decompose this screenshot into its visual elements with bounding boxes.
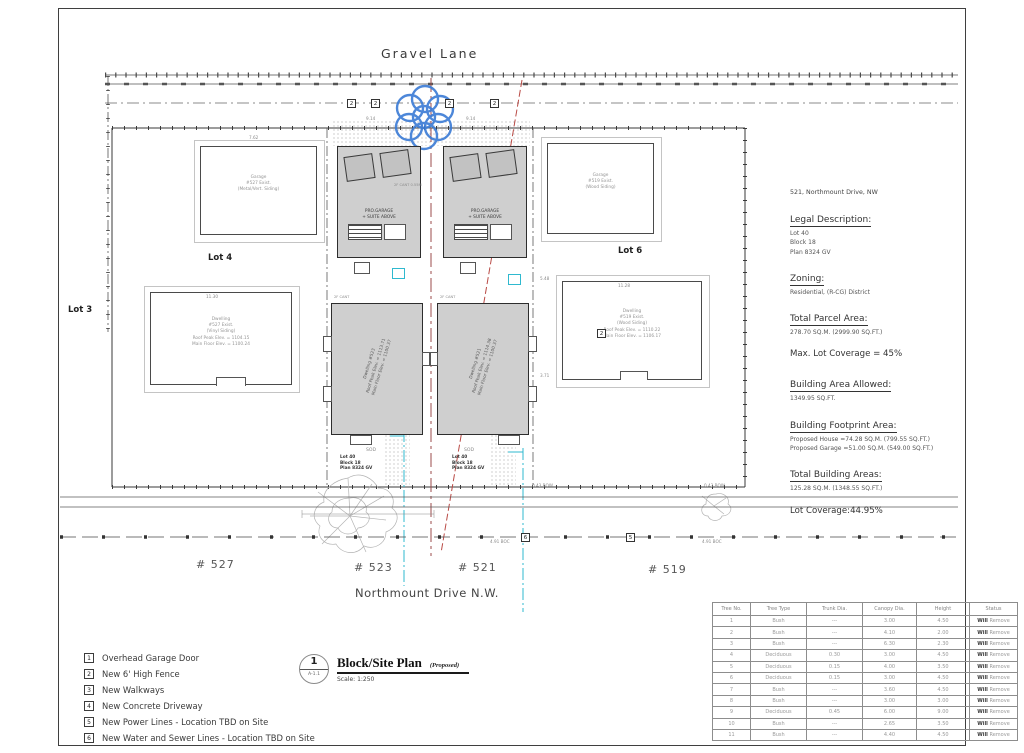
legend-keynote-box: 1	[84, 653, 94, 663]
tree-table-row: 8Bush---3.003.00Will Remove	[713, 695, 1018, 706]
tree-table-row: 3Bush---6.302.30Will Remove	[713, 638, 1018, 649]
tree-table-cell: 11	[713, 729, 751, 740]
tree-table-cell: 3.60	[863, 684, 917, 695]
detail-bubble: 1 A-1.1	[299, 654, 329, 684]
garage-521-stairs	[454, 224, 488, 240]
tree-table-cell: 6	[713, 672, 751, 683]
tree-table-cell: 2.65	[863, 718, 917, 729]
tree-table-cell: 8	[713, 695, 751, 706]
tree-table-cell: 3.50	[917, 718, 970, 729]
tree-table-cell: 4.40	[863, 729, 917, 740]
garage-right-label: Garage#519 Exist.(Wood Siding)	[548, 144, 653, 192]
tree-table-cell: Will Remove	[970, 616, 1018, 627]
existing-dwelling-left: Dwelling#527 Exist.(Vinyl Siding)Roof Pe…	[150, 292, 292, 385]
tree-table-cell: Bush	[751, 627, 807, 638]
lot-6-label: Lot 6	[618, 246, 642, 256]
tree-table-cell: Will Remove	[970, 695, 1018, 706]
legend-item-label: Overhead Garage Door	[102, 653, 199, 663]
tree-table-cell: ---	[807, 729, 863, 740]
concrete-driveway-texture	[332, 120, 530, 146]
dim-371: 3.71	[540, 373, 549, 378]
legal-description-heading: Legal Description:	[790, 215, 871, 227]
tree-table-cell: Deciduous	[751, 650, 807, 661]
keynote-fence-1: 2	[347, 99, 356, 108]
dwelling-left-front-step	[216, 377, 246, 386]
tree-table-cell: 4.50	[917, 650, 970, 661]
tree-table-cell: 4.50	[917, 672, 970, 683]
dim-lane-left: 9.14	[366, 116, 375, 121]
tree-table-cell: 3.00	[917, 695, 970, 706]
address-519: # 519	[648, 563, 687, 576]
tree-table-row: 4Deciduous0.303.004.50Will Remove	[713, 650, 1018, 661]
building-footprint-lines: Proposed House =74.28 SQ.M. (799.55 SQ.F…	[790, 435, 995, 454]
sheet-number: A-1.1	[300, 670, 328, 680]
house-523-bay-1	[323, 336, 332, 352]
tree-table-cell: 5	[713, 661, 751, 672]
tree-table-cell: 3.00	[863, 695, 917, 706]
tree-table-cell: 10	[713, 718, 751, 729]
tree-table-cell: ---	[807, 638, 863, 649]
drawing-title-suffix: (Proposed)	[430, 662, 459, 669]
tree-table-cell: 9	[713, 707, 751, 718]
legend-item-label: New Concrete Driveway	[102, 701, 203, 711]
tree-table-cell: ---	[807, 627, 863, 638]
tree-table-cell: 0.15	[807, 672, 863, 683]
tree-table-cell: Will Remove	[970, 650, 1018, 661]
tree-table-row: 6Deciduous0.153.004.50Will Remove	[713, 672, 1018, 683]
dim-548: 5.48	[540, 276, 549, 281]
tree-table-cell: 0.30	[807, 650, 863, 661]
lot-stack-right: Lot 40Block 18Plan 8324 GV	[452, 455, 484, 472]
tree-table-cell: Will Remove	[970, 672, 1018, 683]
tree-table-cell: Deciduous	[751, 707, 807, 718]
site-address: 521, Northmount Drive, NW	[790, 189, 995, 196]
max-lot-coverage: Max. Lot Coverage = 45%	[790, 349, 995, 359]
tree-table-header-cell: Trunk Dia.	[807, 603, 863, 616]
house-523-bay-2	[323, 386, 332, 402]
zoning-line: Residential, (R-CG) District	[790, 288, 995, 297]
tree-table-header-cell: Height	[917, 603, 970, 616]
tree-table-header-cell: Tree No.	[713, 603, 751, 616]
building-area-allowed-line: 1349.95 SQ.FT.	[790, 394, 995, 403]
dim-boc-2: 4.91 BOC	[702, 539, 722, 544]
dim-bow-1: 0.43 BOW	[532, 483, 553, 488]
tree-table-cell: ---	[807, 616, 863, 627]
garage-523-stairs	[348, 224, 382, 240]
tree-table: Tree No.Tree TypeTrunk Dia.Canopy Dia.He…	[712, 602, 1018, 741]
tree-table-cell: 2	[713, 627, 751, 638]
existing-dwelling-right: Dwelling#519 Exist.(Wood Siding)Roof Pea…	[562, 281, 702, 380]
house-521-porch	[498, 435, 520, 445]
garage-521-skylight-2	[485, 149, 517, 178]
tree-table-cell: 3.00	[863, 672, 917, 683]
detail-number: 1	[300, 655, 328, 670]
dim-lane-right: 9.14	[466, 116, 475, 121]
building-footprint-heading: Building Footprint Area:	[790, 421, 897, 433]
house-523-porch	[350, 435, 372, 445]
dim-cant-garage: 2F CANT 0.55M	[394, 183, 422, 187]
tree-table-row: 2Bush---4.102.00Will Remove	[713, 627, 1018, 638]
tree-table-cell: Bush	[751, 638, 807, 649]
tree-table-cell: 1	[713, 616, 751, 627]
house-521-bay-3	[430, 352, 438, 366]
dwelling-left-label: Dwelling#527 Exist.(Vinyl Siding)Roof Pe…	[151, 293, 291, 348]
legal-description-lines: Lot 40Block 18Plan 8324 GV	[790, 229, 995, 257]
garage-523-skylight-1	[343, 153, 375, 182]
tree-table-row: 10Bush---2.653.50Will Remove	[713, 718, 1018, 729]
legend-keynote-box: 3	[84, 685, 94, 695]
keynote-legend: 1Overhead Garage Door2New 6' High Fence3…	[84, 650, 315, 746]
tree-table-cell: Deciduous	[751, 672, 807, 683]
existing-garage-left: Garage#527 Exist.(Metal/Vert. Siding)	[200, 146, 317, 235]
tree-table-cell: 3.00	[863, 616, 917, 627]
tree-table-cell: 6.30	[863, 638, 917, 649]
tree-table-cell: Bush	[751, 718, 807, 729]
legend-item: 3New Walkways	[84, 682, 315, 698]
legend-item-label: New 6' High Fence	[102, 669, 180, 679]
legend-item: 6New Water and Sewer Lines - Location TB…	[84, 730, 315, 746]
legend-item-label: New Water and Sewer Lines - Location TBD…	[102, 733, 315, 743]
tree-table-cell: 2.00	[917, 627, 970, 638]
tree-table-cell: 4	[713, 650, 751, 661]
zoning-heading: Zoning:	[790, 274, 824, 286]
tree-table-grid: Tree No.Tree TypeTrunk Dia.Canopy Dia.He…	[712, 602, 1018, 741]
parcel-area-line: 278.70 SQ.M. (2999.90 SQ.FT.)	[790, 328, 995, 337]
garage-left-label: Garage#527 Exist.(Metal/Vert. Siding)	[201, 147, 316, 194]
tree-table-cell: 4.50	[917, 616, 970, 627]
address-527: # 527	[196, 558, 235, 571]
total-building-areas-heading: Total Building Areas:	[790, 470, 882, 482]
lot-3-label: Lot 3	[68, 305, 92, 315]
keynote-fence-5: 2	[597, 329, 606, 338]
tree-table-cell: Will Remove	[970, 729, 1018, 740]
site-plan-sheet: Garage#527 Exist.(Metal/Vert. Siding) Dw…	[0, 0, 1024, 753]
tree-table-row: 5Deciduous0.154.003.50Will Remove	[713, 661, 1018, 672]
tree-table-row: 1Bush---3.004.50Will Remove	[713, 616, 1018, 627]
house-521-bay-2	[528, 386, 537, 402]
dwelling-right-front-step	[620, 371, 648, 380]
existing-garage-right: Garage#519 Exist.(Wood Siding)	[547, 143, 654, 234]
tree-table-cell: 4.50	[917, 684, 970, 695]
tree-table-cell: 9.00	[917, 707, 970, 718]
building-area-allowed-heading: Building Area Allowed:	[790, 380, 891, 392]
tree-table-header-cell: Canopy Dia.	[863, 603, 917, 616]
dim-dwelling-left: 11.30	[206, 294, 218, 299]
lot-4-label: Lot 4	[208, 253, 232, 263]
tree-table-cell: ---	[807, 718, 863, 729]
tree-table-cell: 2.30	[917, 638, 970, 649]
drawing-title: Block/Site Plan	[337, 655, 422, 670]
dim-cant-left: 2F CANT	[334, 295, 349, 299]
northmount-drive-label: Northmount Drive N.W.	[355, 586, 499, 600]
garage-521-skylight-1	[449, 153, 481, 182]
tree-table-row: 11Bush---4.404.50Will Remove	[713, 729, 1018, 740]
lot-coverage-result: Lot Coverage:44.95%	[790, 506, 995, 516]
garage-523-landing	[384, 224, 406, 240]
sod-label-right: SOD	[464, 448, 474, 453]
tree-table-cell: Deciduous	[751, 661, 807, 672]
lot-stack-left: Lot 40Block 18Plan 8324 GV	[340, 455, 372, 472]
total-building-areas-line: 125.28 SQ.M. (1348.55 SQ.FT.)	[790, 484, 995, 493]
tree-table-cell: Will Remove	[970, 718, 1018, 729]
tree-table-cell: 7	[713, 684, 751, 695]
tree-table-cell: 4.00	[863, 661, 917, 672]
dim-bow-2: 0.43 BOW	[704, 483, 725, 488]
tree-table-cell: Will Remove	[970, 684, 1018, 695]
rear-utility-box-521	[508, 274, 521, 285]
dim-garage-left: 7.62	[249, 135, 258, 140]
tree-table-cell: 4.50	[917, 729, 970, 740]
rear-utility-box-523	[392, 268, 405, 279]
rear-stoop-523	[354, 262, 370, 274]
tree-table-cell: Bush	[751, 616, 807, 627]
tree-table-cell: 0.15	[807, 661, 863, 672]
tree-table-header-cell: Status	[970, 603, 1018, 616]
title-underline	[337, 672, 469, 674]
tree-table-cell: 3.50	[917, 661, 970, 672]
keynote-sewer: 6	[521, 533, 530, 542]
tree-table-cell: Bush	[751, 729, 807, 740]
tree-table-cell: Will Remove	[970, 638, 1018, 649]
legend-item-label: New Power Lines - Location TBD on Site	[102, 717, 268, 727]
tree-table-cell: ---	[807, 695, 863, 706]
address-523: # 523	[354, 561, 393, 574]
tree-table-cell: ---	[807, 684, 863, 695]
dim-cant-right: 2F CANT	[440, 295, 455, 299]
legend-item: 5New Power Lines - Location TBD on Site	[84, 714, 315, 730]
address-521: # 521	[458, 561, 497, 574]
tree-table-header-row: Tree No.Tree TypeTrunk Dia.Canopy Dia.He…	[713, 603, 1018, 616]
sod-label-left: SOD	[366, 448, 376, 453]
rear-stoop-521	[460, 262, 476, 274]
keynote-power: 5	[626, 533, 635, 542]
legend-item: 4New Concrete Driveway	[84, 698, 315, 714]
house-523-bay-3	[422, 352, 430, 366]
keynote-fence-2: 2	[371, 99, 380, 108]
tree-table-header-cell: Tree Type	[751, 603, 807, 616]
drawing-scale: Scale: 1:250	[337, 676, 469, 683]
keynote-fence-3: 2	[445, 99, 454, 108]
project-notes-panel: 521, Northmount Drive, NW Legal Descript…	[790, 189, 995, 529]
parcel-area-heading: Total Parcel Area:	[790, 314, 868, 326]
keynote-fence-4: 2	[490, 99, 499, 108]
legend-item: 1Overhead Garage Door	[84, 650, 315, 666]
tree-table-cell: 3.00	[863, 650, 917, 661]
garage-523-skylight-2	[379, 149, 411, 178]
tree-table-cell: 0.45	[807, 707, 863, 718]
legend-item-label: New Walkways	[102, 685, 164, 695]
tree-table-row: 9Deciduous0.456.009.00Will Remove	[713, 707, 1018, 718]
gravel-lane-label: Gravel Lane	[381, 46, 478, 61]
tree-table-cell: Bush	[751, 695, 807, 706]
legend-keynote-box: 5	[84, 717, 94, 727]
tree-table-cell: Will Remove	[970, 707, 1018, 718]
legend-keynote-box: 4	[84, 701, 94, 711]
garage-521-landing	[490, 224, 512, 240]
tree-table-row: 7Bush---3.604.50Will Remove	[713, 684, 1018, 695]
legend-keynote-box: 6	[84, 733, 94, 743]
tree-table-cell: Will Remove	[970, 627, 1018, 638]
dwelling-right-label: Dwelling#519 Exist.(Wood Siding)Roof Pea…	[563, 282, 701, 340]
legend-item: 2New 6' High Fence	[84, 666, 315, 682]
tree-table-cell: 4.10	[863, 627, 917, 638]
legend-keynote-box: 2	[84, 669, 94, 679]
house-521-bay-1	[528, 336, 537, 352]
tree-table-cell: 6.00	[863, 707, 917, 718]
tree-table-cell: Will Remove	[970, 661, 1018, 672]
dim-boc-1: 4.91 BOC	[490, 539, 510, 544]
tree-table-cell: 3	[713, 638, 751, 649]
dim-dwelling-right: 11.28	[618, 283, 630, 288]
tree-table-cell: Bush	[751, 684, 807, 695]
